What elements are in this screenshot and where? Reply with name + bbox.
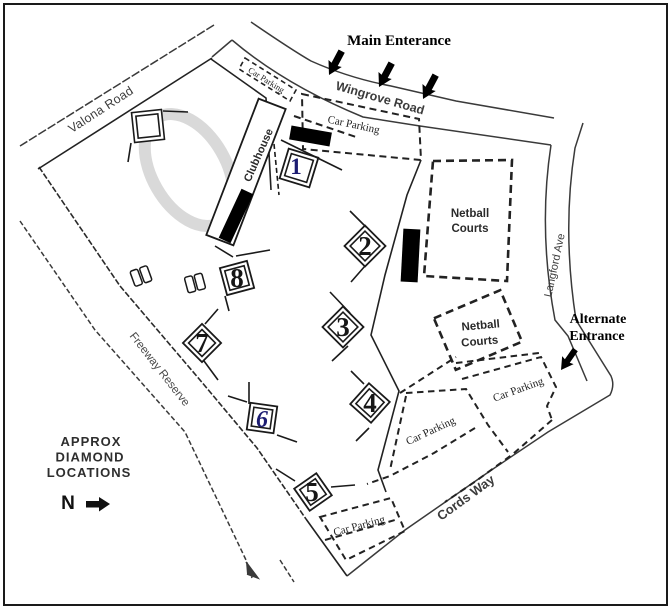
svg-text:6: 6 xyxy=(256,407,268,433)
svg-text:APPROX: APPROX xyxy=(61,434,122,449)
svg-text:7: 7 xyxy=(195,328,209,358)
svg-text:DIAMOND: DIAMOND xyxy=(55,450,124,465)
svg-text:Alternate: Alternate xyxy=(570,312,627,327)
svg-text:Entrance: Entrance xyxy=(569,329,624,344)
svg-text:4: 4 xyxy=(363,388,377,418)
svg-text:5: 5 xyxy=(305,477,319,507)
svg-text:3: 3 xyxy=(336,312,350,342)
svg-text:8: 8 xyxy=(230,263,244,293)
svg-text:Main Enterance: Main Enterance xyxy=(347,33,451,49)
svg-text:1: 1 xyxy=(290,154,302,179)
svg-text:2: 2 xyxy=(358,231,372,261)
svg-text:Netball: Netball xyxy=(451,208,489,220)
svg-text:N: N xyxy=(61,493,75,514)
svg-text:Courts: Courts xyxy=(451,223,488,235)
svg-text:LOCATIONS: LOCATIONS xyxy=(47,465,132,480)
